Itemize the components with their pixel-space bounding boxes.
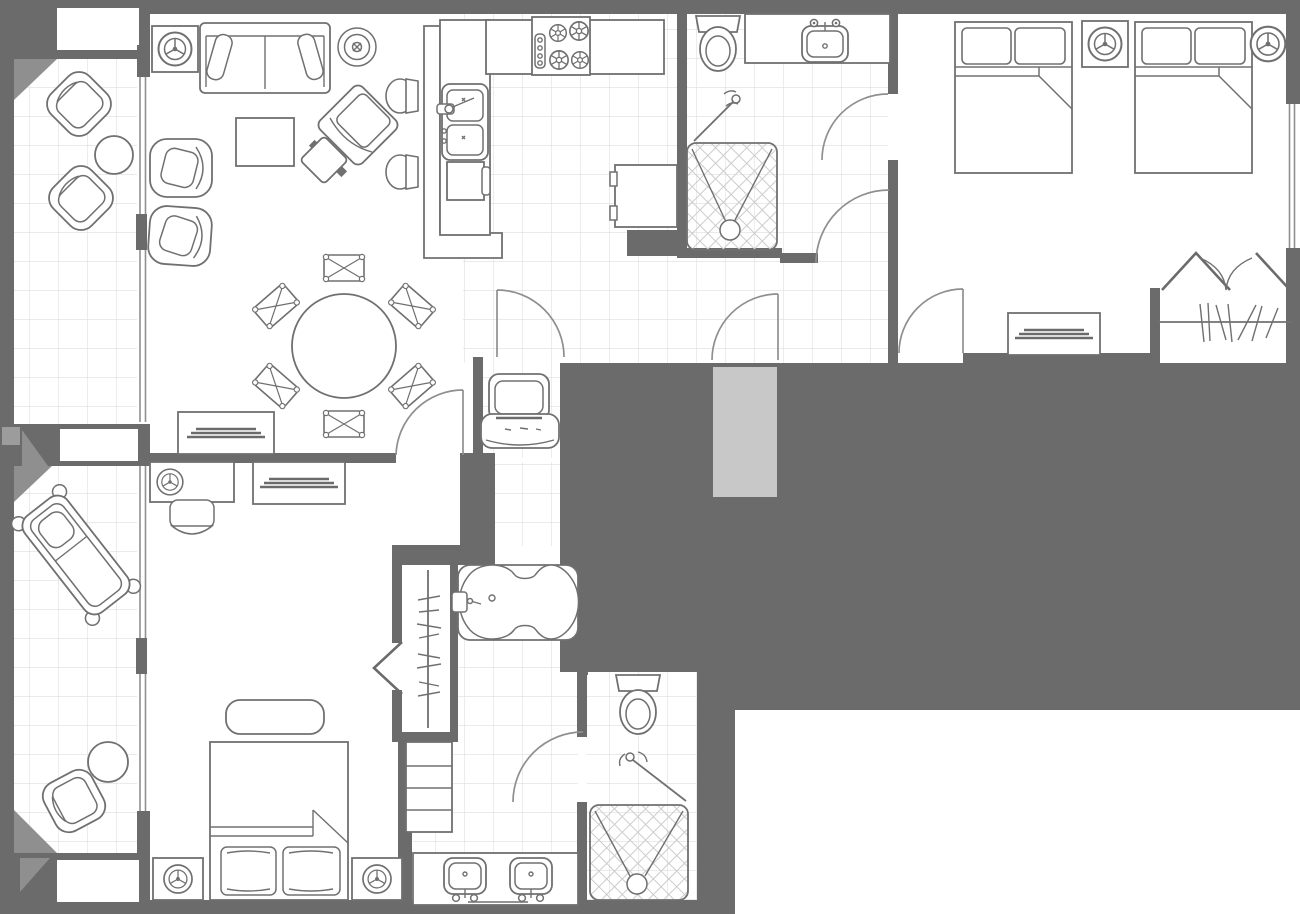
hallway-floor xyxy=(463,248,888,363)
wall-niche-top xyxy=(57,8,139,50)
cooktop xyxy=(532,17,590,75)
ceiling-fan-box xyxy=(152,26,198,72)
coffee-table xyxy=(236,118,294,166)
wall-closet1-top xyxy=(392,545,460,565)
toilet-lower xyxy=(616,675,660,734)
dining-chair xyxy=(388,362,437,410)
floor-plan-drawing xyxy=(0,0,1300,914)
dining-chair xyxy=(323,254,364,281)
wall-right-upper xyxy=(1286,0,1300,104)
floor-plan-canvas: Two-bedroom suite floor plan xyxy=(0,0,1300,914)
accent-chair xyxy=(147,205,213,267)
dining-chair xyxy=(252,362,301,410)
slider-handle xyxy=(136,638,147,674)
dishwasher xyxy=(447,162,490,200)
wall-kitchen-bath xyxy=(677,14,687,258)
bench xyxy=(226,700,324,734)
nightstand-fan xyxy=(153,858,203,900)
wall-nook-west xyxy=(473,357,483,463)
nightstand-fan xyxy=(352,858,402,900)
dining-chair xyxy=(323,410,364,437)
wall-corridor-block xyxy=(460,453,495,565)
wall-closet1-south xyxy=(392,732,458,742)
vanity-lower xyxy=(413,853,578,905)
outside-mass xyxy=(560,363,1300,672)
round-side-table xyxy=(95,136,133,174)
wall-niche-bottom xyxy=(57,860,139,902)
corridor-floor xyxy=(495,462,560,546)
outside-mass xyxy=(735,672,1300,710)
double-bed xyxy=(955,22,1072,173)
ceiling-fan xyxy=(1251,27,1286,62)
ceiling-light xyxy=(338,28,376,66)
garden-tub xyxy=(452,565,579,640)
dining-table xyxy=(292,294,396,398)
wall-top xyxy=(0,0,1300,14)
dining-chair xyxy=(252,282,301,330)
wall-niche-divider xyxy=(60,429,138,461)
bifold-doors xyxy=(1162,253,1290,290)
wall-stub-glass-bottom xyxy=(137,811,150,855)
king-bed xyxy=(210,742,348,900)
entry-hall xyxy=(481,374,559,448)
wall-toilet-west-a xyxy=(577,670,587,737)
wall-tub-east xyxy=(578,563,588,675)
door-bedroom2 xyxy=(899,289,963,353)
slider-handle xyxy=(136,214,147,250)
entry-mat xyxy=(713,367,777,497)
kitchen-sink xyxy=(437,84,488,160)
luggage-bench xyxy=(481,374,559,448)
wall-right-lower xyxy=(1286,248,1300,363)
divider-pad xyxy=(2,427,20,445)
wardrobe-shelves xyxy=(406,742,452,832)
closet-lower xyxy=(374,565,450,732)
balcony-lower-slider xyxy=(136,466,147,811)
door-hinge xyxy=(626,753,634,761)
wall-closet1-east xyxy=(450,565,458,735)
refrigerator xyxy=(610,165,677,227)
desk xyxy=(150,462,234,534)
credenza xyxy=(178,412,274,454)
dresser xyxy=(1008,313,1100,355)
bifold-doors xyxy=(374,642,402,694)
bar-stool xyxy=(386,155,418,189)
wall-closet1-west-a xyxy=(392,565,402,643)
desk-chair-back xyxy=(172,526,212,534)
wall-stub-glass-top xyxy=(137,45,150,77)
bar-stool xyxy=(386,79,418,113)
sofa xyxy=(200,23,330,93)
accent-chair xyxy=(150,139,212,197)
dining-set xyxy=(252,254,437,437)
closet-upper-right xyxy=(1158,253,1292,342)
desk-chair xyxy=(170,500,214,528)
dining-chair xyxy=(388,282,437,330)
wall-bottom xyxy=(0,900,700,914)
bedroom-upper-right xyxy=(955,21,1292,355)
double-bed xyxy=(1135,22,1252,173)
outside-mass-arm xyxy=(697,672,735,914)
vanity-upper xyxy=(745,14,890,63)
door-hinge xyxy=(732,95,740,103)
dresser xyxy=(253,462,345,504)
nightstand-fan xyxy=(1082,21,1128,67)
bedroom2-window xyxy=(1290,104,1295,248)
wall-closet2-west xyxy=(1150,288,1160,363)
wall-bath-upper-east-b xyxy=(888,160,898,363)
round-side-table xyxy=(88,742,128,782)
balcony-upper-slider xyxy=(136,77,147,422)
wall-hall-stub xyxy=(780,253,818,263)
